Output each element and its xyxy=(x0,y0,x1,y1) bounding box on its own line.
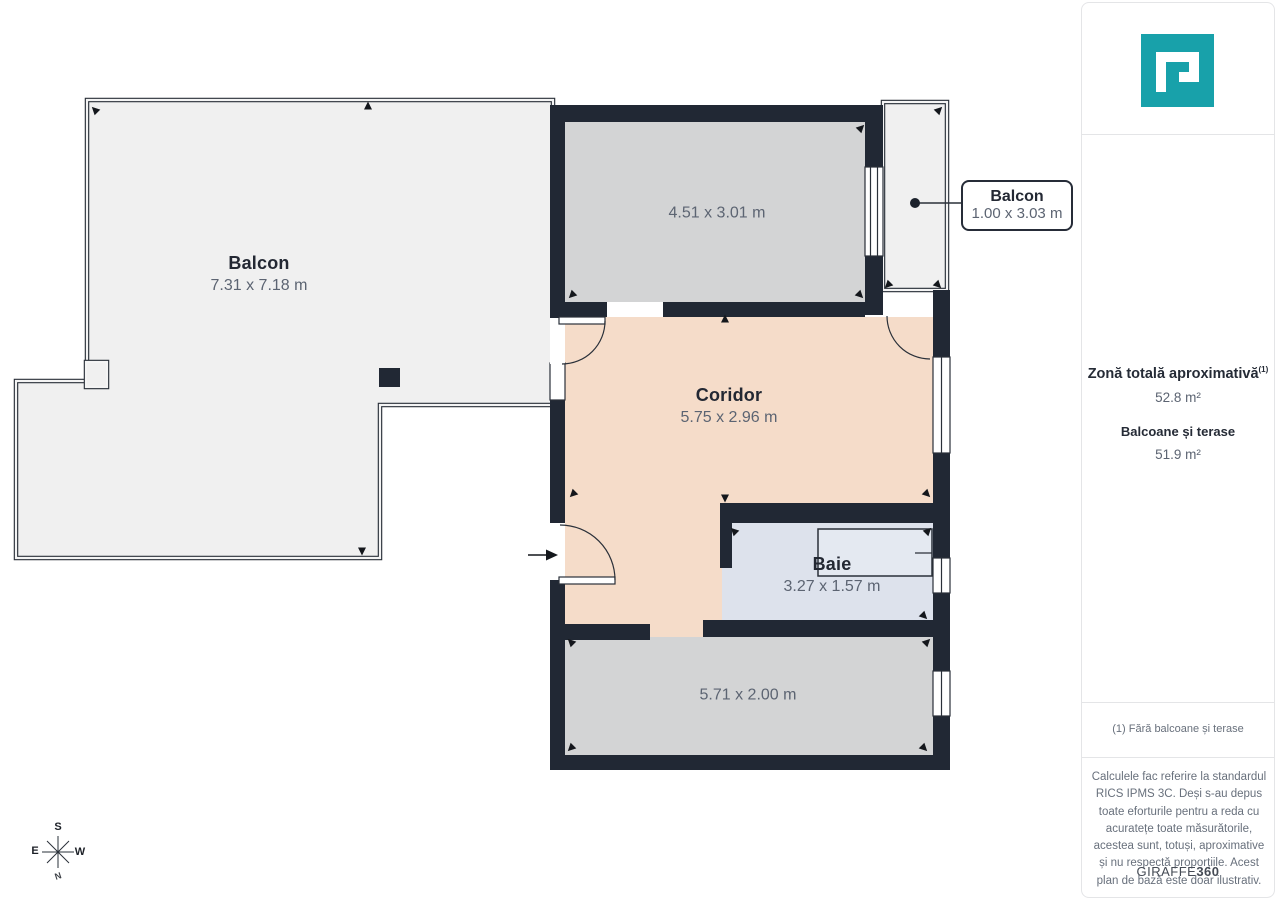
total-area-value: 52.8 m² xyxy=(1082,390,1274,405)
total-area-label: Zonă totală aproximativă xyxy=(1088,366,1259,382)
compass-letter-w: W xyxy=(75,846,85,858)
compass-letter-e: E xyxy=(31,845,38,857)
room-dimensions: 4.51 x 3.01 m xyxy=(669,205,766,223)
room-dimensions: 1.00 x 3.03 m xyxy=(972,205,1063,223)
balconies-value: 51.9 m² xyxy=(1082,447,1274,462)
footnote-text: (1) Fără balcoane și terase xyxy=(1082,723,1274,735)
room-dimensions: 5.71 x 2.00 m xyxy=(700,687,797,705)
balcony-right-callout: Balcon 1.00 x 3.03 m xyxy=(961,180,1073,231)
room-dimensions: 3.27 x 1.57 m xyxy=(784,578,881,596)
total-area-footnote-ref: (1) xyxy=(1259,365,1269,374)
door-leaf-entrance xyxy=(559,577,615,584)
giraffe360-logo-icon xyxy=(1141,34,1214,107)
room-name: Coridor xyxy=(681,385,778,406)
compass-icon xyxy=(42,836,74,868)
room-dimensions: 5.75 x 2.96 m xyxy=(681,409,778,427)
sidebar-divider xyxy=(1082,702,1274,703)
brand-wordmark: GIRAFFE360 xyxy=(1082,864,1274,879)
info-sidebar: Zonă totală aproximativă(1) 52.8 m² Balc… xyxy=(1081,2,1275,898)
label-room-top: 4.51 x 3.01 m xyxy=(669,202,766,223)
area-summary: Zonă totală aproximativă(1) 52.8 m² Balc… xyxy=(1082,365,1274,462)
balconies-label: Balcoane și terase xyxy=(1082,424,1274,439)
label-balcony-left: Balcon 7.31 x 7.18 m xyxy=(211,253,308,295)
label-bathroom: Baie 3.27 x 1.57 m xyxy=(784,554,881,596)
label-room-bottom: 5.71 x 2.00 m xyxy=(700,684,797,705)
room-name: Balcon xyxy=(990,188,1043,206)
brand-number: 360 xyxy=(1196,864,1219,879)
pillar xyxy=(379,368,400,387)
brand-name: GIRAFFE xyxy=(1136,864,1196,879)
room-dimensions: 7.31 x 7.18 m xyxy=(211,277,308,295)
total-area-heading: Zonă totală aproximativă(1) xyxy=(1082,365,1274,382)
balcony-right-outline xyxy=(883,102,947,290)
room-name: Baie xyxy=(784,554,881,575)
label-corridor: Coridor 5.75 x 2.96 m xyxy=(681,385,778,427)
room-name: Balcon xyxy=(211,253,308,274)
balcony-left-outline xyxy=(16,100,553,558)
sidebar-divider xyxy=(1082,134,1274,135)
compass-letter-s: S xyxy=(54,821,61,833)
sidebar-divider xyxy=(1082,757,1274,758)
door-leaf-balcony xyxy=(559,317,605,324)
floorplan-page: Balcon 7.31 x 7.18 m 4.51 x 3.01 m Corid… xyxy=(0,0,1280,906)
